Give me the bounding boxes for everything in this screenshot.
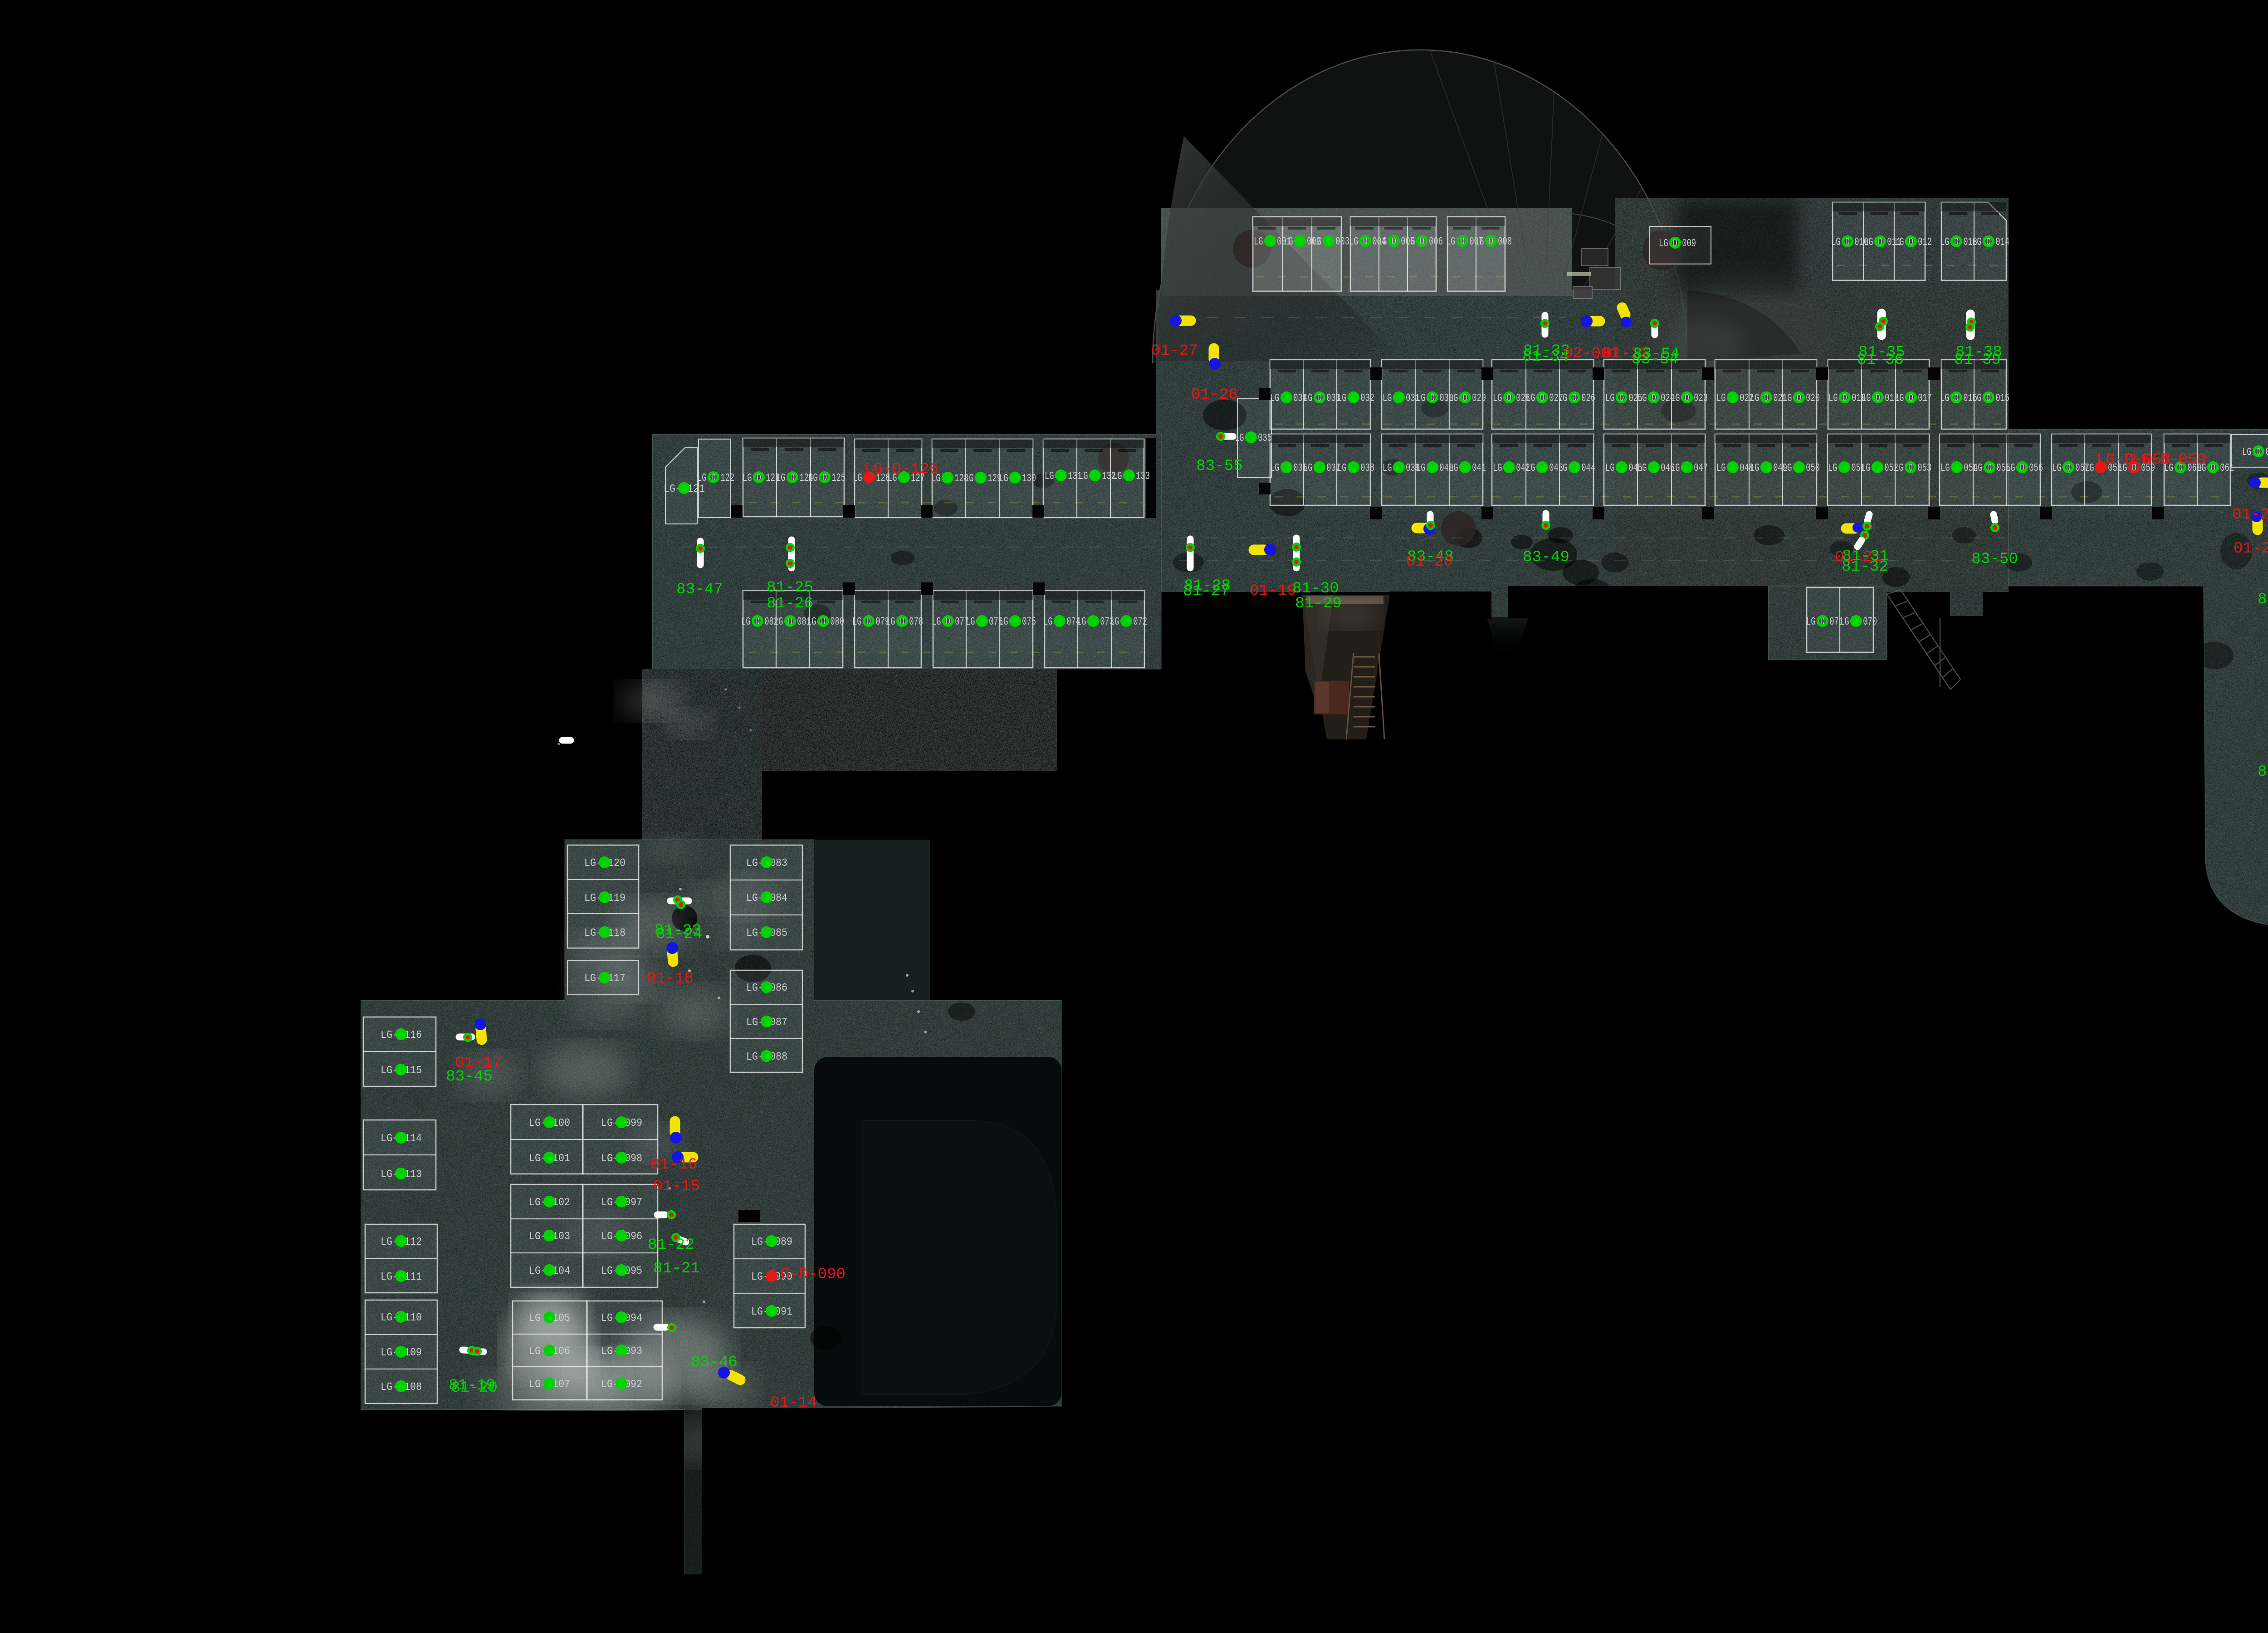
svg-text:81-32: 81-32 [1842, 558, 1888, 576]
svg-text:LG-D-126: LG-D-126 [864, 461, 938, 478]
svg-text:83-50: 83-50 [1971, 551, 2018, 568]
svg-text:81-21: 81-21 [653, 1260, 700, 1277]
svg-text:83-52: 83-52 [2258, 763, 2268, 781]
svg-text:81-29: 81-29 [1295, 595, 1342, 612]
svg-text:01-15: 01-15 [653, 1178, 700, 1195]
svg-text:81-36: 81-36 [1857, 352, 1904, 369]
svg-text:83-54: 83-54 [1632, 351, 1678, 368]
svg-text:83-46: 83-46 [691, 1354, 738, 1371]
svg-text:01-16: 01-16 [650, 1156, 697, 1173]
svg-text:01-27: 01-27 [1151, 342, 1198, 360]
svg-text:83-45: 83-45 [446, 1068, 493, 1085]
svg-text:LG-D-059: LG-D-059 [2132, 451, 2206, 469]
svg-text:83-55: 83-55 [1196, 458, 1243, 475]
svg-text:83-51: 83-51 [2258, 591, 2268, 608]
svg-text:01-22: 01-22 [2232, 506, 2268, 523]
svg-text:01-23: 01-23 [2234, 540, 2268, 557]
svg-text:01-19: 01-19 [1250, 582, 1296, 600]
svg-text:01-18: 01-18 [647, 970, 694, 988]
svg-text:01-26: 01-26 [1191, 386, 1238, 404]
svg-text:81-22: 81-22 [648, 1237, 694, 1254]
svg-text:01-20: 01-20 [1406, 553, 1453, 571]
svg-text:83-49: 83-49 [1523, 549, 1569, 566]
svg-text:81-26: 81-26 [767, 595, 813, 612]
svg-text:81-39: 81-39 [1954, 352, 2001, 369]
svg-text:81-25: 81-25 [767, 579, 813, 596]
svg-text:81-27: 81-27 [1183, 583, 1230, 600]
svg-text:81-34: 81-34 [1522, 348, 1569, 366]
svg-text:83-47: 83-47 [676, 581, 723, 598]
svg-text:81-20: 81-20 [451, 1379, 498, 1397]
svg-text:81-24: 81-24 [656, 926, 703, 943]
svg-text:LG-D-090: LG-D-090 [771, 1266, 846, 1283]
svg-text:01-14: 01-14 [770, 1394, 817, 1412]
